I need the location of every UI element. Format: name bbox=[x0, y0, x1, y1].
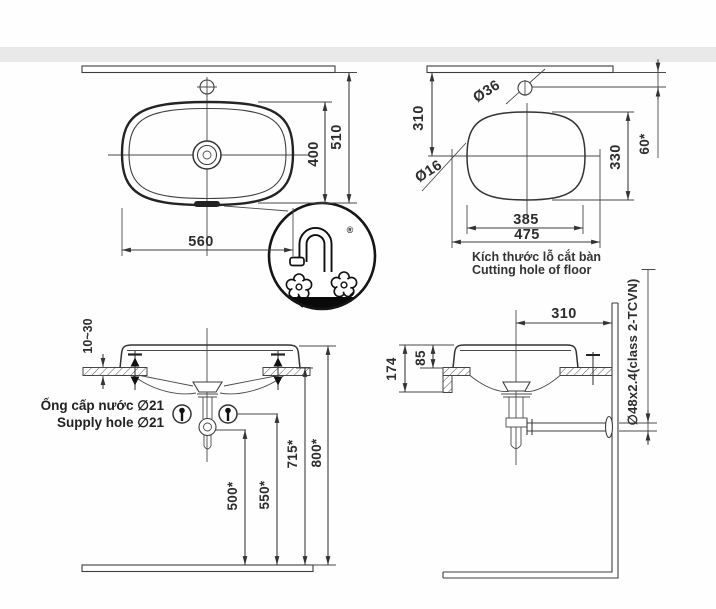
dim-385: 385 bbox=[513, 212, 538, 228]
dim-560: 560 bbox=[188, 234, 213, 250]
countertop-section-left bbox=[83, 368, 147, 376]
dim-60: 60* bbox=[637, 133, 652, 155]
countertop-section-front bbox=[443, 368, 470, 376]
registered-mark: ® bbox=[347, 225, 354, 235]
caption-english: Cutting hole of floor bbox=[472, 263, 592, 277]
dim-hole-16: Ø16 bbox=[412, 157, 445, 186]
front-elevation-view: 10~30 Ống cấp nước ∅21 Supply hole ∅21 5… bbox=[41, 318, 336, 571]
scan-shadow-band bbox=[0, 47, 716, 62]
overflow-leader bbox=[224, 206, 288, 211]
wall-flange bbox=[606, 417, 613, 438]
dim-500: 500* bbox=[225, 481, 240, 510]
cutting-hole-view: 310 Ø36 Ø16 330 60* 385 475 Kích thước l… bbox=[411, 59, 666, 277]
brand-logo: ® bbox=[269, 203, 375, 309]
dim-85: 85 bbox=[413, 350, 428, 366]
dim-715: 715* bbox=[285, 439, 300, 468]
countertop-section-back bbox=[560, 368, 612, 376]
supply-hole-right bbox=[219, 405, 237, 423]
drawing-canvas: ® 560 400 510 310 Ø36 Ø16 330 60* 385 47… bbox=[0, 0, 716, 609]
drain-elbow bbox=[199, 419, 216, 436]
wall-line bbox=[427, 66, 613, 73]
dim-475: 475 bbox=[514, 227, 539, 243]
drain-funnel bbox=[503, 382, 530, 391]
dim-310-wall: 310 bbox=[411, 105, 427, 130]
countertop-section-right bbox=[263, 368, 310, 376]
drain-funnel bbox=[193, 382, 222, 392]
floor-line bbox=[82, 565, 313, 572]
dim-550: 550* bbox=[257, 480, 272, 509]
side-section-view: 310 85 174 ∅48x2.4(class 2-TCVN) bbox=[384, 270, 657, 579]
waste-pipe bbox=[527, 419, 612, 435]
washbasin-technical-drawing: ® 560 400 510 310 Ø36 Ø16 330 60* 385 47… bbox=[0, 0, 716, 609]
faucet-spout-icon bbox=[290, 258, 304, 266]
centerlines-and-leaders bbox=[428, 73, 666, 218]
caption-vietnamese: Kích thước lỗ cắt bàn bbox=[472, 249, 601, 264]
faucet-hole-cross bbox=[197, 77, 217, 97]
dim-800: 800* bbox=[309, 438, 324, 467]
dim-310-side: 310 bbox=[551, 306, 576, 322]
wall-line bbox=[82, 66, 335, 73]
dim-counter-thickness: 10~30 bbox=[81, 318, 95, 353]
dim-510: 510 bbox=[329, 124, 345, 149]
dim-hole-36: Ø36 bbox=[470, 77, 503, 106]
countertop-apron bbox=[443, 376, 452, 393]
pipe-spec-label: ∅48x2.4(class 2-TCVN) bbox=[625, 278, 640, 425]
dim-400: 400 bbox=[306, 141, 322, 166]
supply-label-english: Supply hole ∅21 bbox=[57, 415, 165, 430]
basin-body bbox=[120, 345, 300, 368]
overflow-slot bbox=[194, 201, 220, 207]
trap-coupling bbox=[506, 418, 527, 427]
supply-label-vietnamese: Ống cấp nước ∅21 bbox=[41, 398, 165, 413]
basin-body bbox=[453, 345, 578, 368]
dim-174: 174 bbox=[384, 357, 399, 381]
dim-330: 330 bbox=[608, 144, 624, 169]
supply-hole-left bbox=[173, 405, 191, 423]
